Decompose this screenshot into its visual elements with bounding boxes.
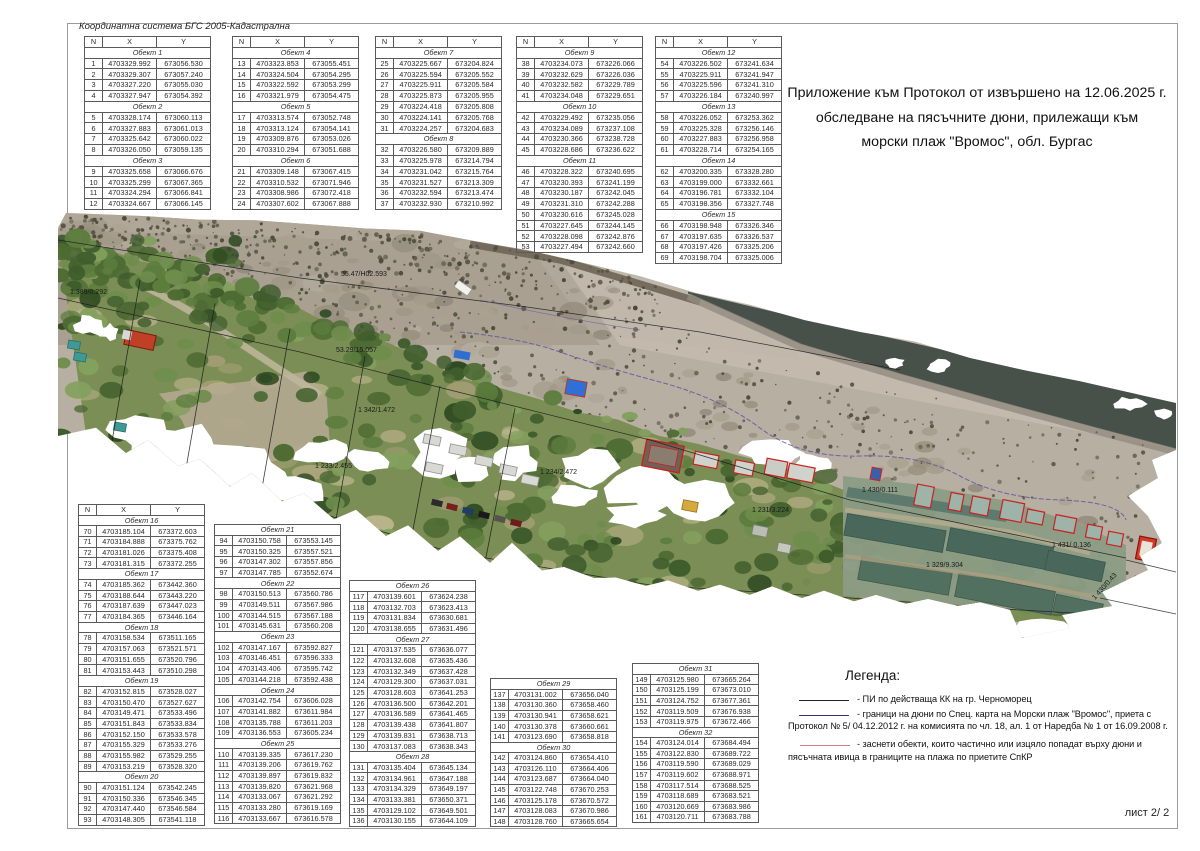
- svg-text:55.47/H02.593: 55.47/H02.593: [341, 271, 387, 278]
- svg-text:1 431/ 0.136: 1 431/ 0.136: [1052, 542, 1091, 549]
- svg-text:1 430/0.111: 1 430/0.111: [862, 487, 898, 494]
- svg-text:1 231/3.224: 1 231/3.224: [752, 507, 789, 514]
- svg-text:1 234/2.472: 1 234/2.472: [540, 469, 577, 476]
- svg-text:1 233/2.455: 1 233/2.455: [315, 463, 352, 470]
- svg-text:1.389/0.292: 1.389/0.292: [70, 289, 107, 296]
- svg-text:1 329/9.304: 1 329/9.304: [926, 562, 963, 569]
- svg-text:53.29/15.057: 53.29/15.057: [336, 347, 377, 354]
- svg-text:1 342/1.472: 1 342/1.472: [358, 407, 395, 414]
